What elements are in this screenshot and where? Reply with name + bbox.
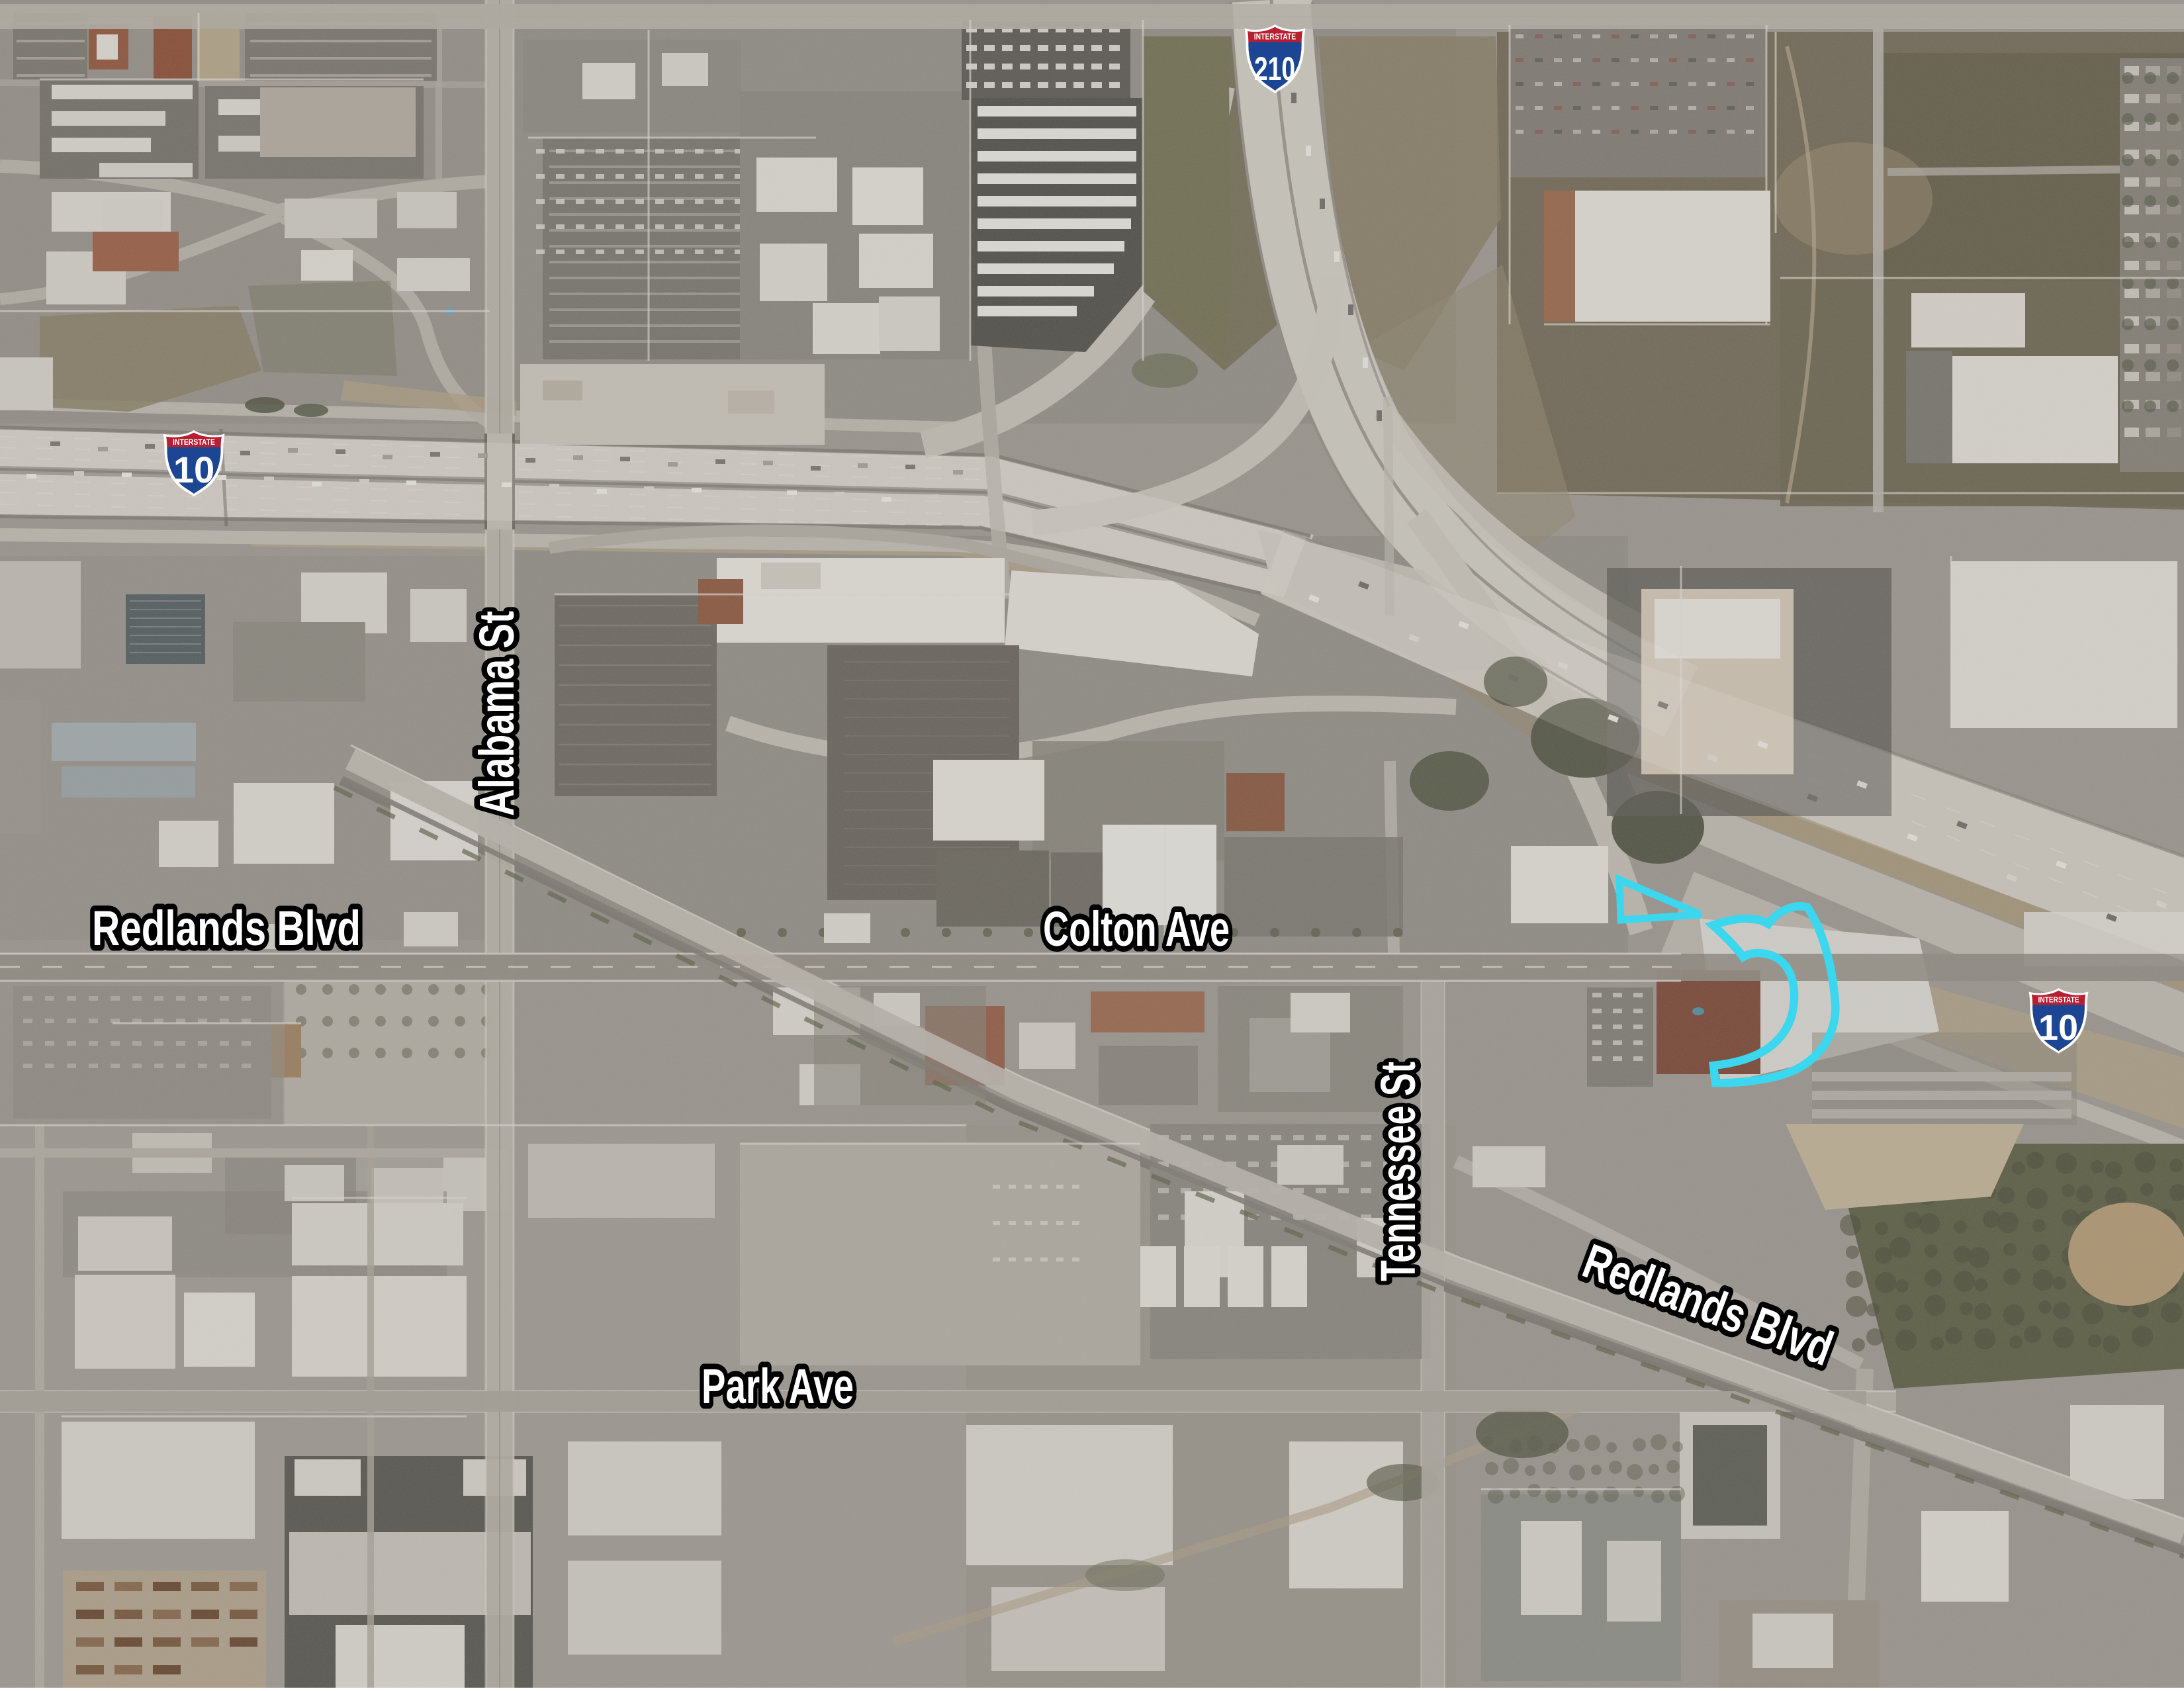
svg-text:10: 10 (2038, 1008, 2078, 1048)
svg-text:Tennessee St: Tennessee St (1371, 1062, 1426, 1281)
svg-text:Alabama St: Alabama St (469, 611, 524, 816)
svg-text:Park Ave: Park Ave (702, 1359, 854, 1414)
svg-text:10: 10 (173, 449, 214, 490)
svg-text:Colton Ave: Colton Ave (1043, 901, 1230, 956)
svg-text:Redlands Blvd: Redlands Blvd (92, 901, 361, 956)
svg-text:210: 210 (1254, 50, 1295, 87)
